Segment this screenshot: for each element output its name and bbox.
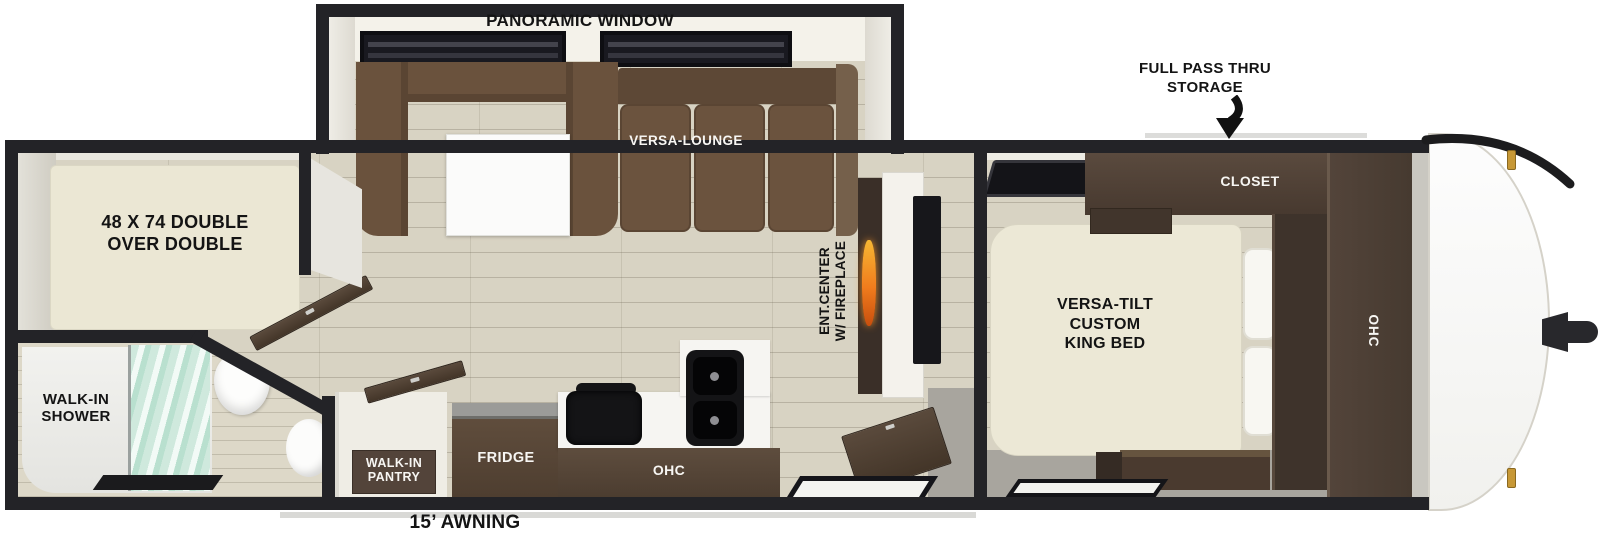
versa-lounge-back bbox=[618, 68, 852, 104]
hitch-arm bbox=[1562, 321, 1598, 343]
ent-center-label: ENT.CENTER W/ FIREPLACE bbox=[817, 191, 859, 391]
bathroom-wall-vertical bbox=[322, 396, 335, 497]
shower-glass-door bbox=[128, 345, 210, 491]
front-inner-wall bbox=[1412, 153, 1428, 497]
storage-arrow-icon bbox=[1200, 95, 1252, 141]
fridge-top bbox=[452, 403, 560, 419]
sink-drain-icon bbox=[710, 372, 719, 381]
closet-overhead-box bbox=[1090, 208, 1172, 234]
pantry-label: WALK-IN PANTRY bbox=[352, 456, 436, 484]
bedroom-ohc-label: OHC bbox=[1359, 301, 1381, 361]
slideout-side-wall-left bbox=[329, 17, 355, 153]
cooktop bbox=[566, 391, 642, 445]
slideout-wall-right bbox=[891, 4, 904, 154]
marker-light-icon bbox=[1507, 150, 1516, 170]
kitchen-sink bbox=[686, 350, 744, 446]
main-wall-bottom bbox=[5, 497, 1429, 510]
shower-threshold bbox=[93, 475, 224, 490]
window-slat bbox=[608, 42, 784, 47]
pass-thru-storage-label: FULL PASS THRU STORAGE bbox=[1100, 60, 1310, 98]
awning-label: 15’ AWNING bbox=[370, 512, 560, 534]
bedroom-floor-vent bbox=[1006, 479, 1169, 497]
fireplace-flame-icon bbox=[862, 240, 876, 326]
bunk-label: 48 X 74 DOUBLE OVER DOUBLE bbox=[58, 212, 292, 255]
fridge-label: FRIDGE bbox=[452, 450, 560, 466]
floorplan-canvas: PANORAMIC WINDOW VERSA-LOUNGE ENT.CENTER… bbox=[0, 0, 1600, 540]
versa-lounge-cushion bbox=[694, 104, 765, 232]
door-handle-icon bbox=[885, 424, 895, 431]
vent-inner bbox=[1013, 483, 1160, 493]
sink-drain-icon bbox=[710, 416, 719, 425]
slideout-side-wall-right bbox=[865, 17, 891, 153]
marker-light-icon bbox=[1507, 468, 1516, 488]
versa-lounge-cushion bbox=[620, 104, 691, 232]
main-wall-left bbox=[5, 140, 18, 510]
shower-label: WALK-IN SHOWER bbox=[24, 391, 128, 426]
window-slat bbox=[608, 53, 784, 58]
tv-panel bbox=[913, 196, 941, 364]
bathroom-wall-horizontal bbox=[12, 330, 208, 343]
slideout-wall-left bbox=[316, 4, 329, 154]
window-slat bbox=[368, 53, 558, 58]
door-handle-icon bbox=[410, 377, 420, 383]
closet-label: CLOSET bbox=[1165, 174, 1335, 190]
storage-indicator-line bbox=[1145, 133, 1367, 138]
panoramic-window-pane-right bbox=[600, 31, 792, 67]
entry-steps-tread bbox=[793, 481, 929, 497]
bedroom-divider-wall bbox=[974, 150, 987, 497]
bedroom-wardrobe-column bbox=[1272, 214, 1327, 490]
bunk-wall-highlight bbox=[18, 153, 299, 160]
king-bed-label: VERSA-TILT CUSTOM KING BED bbox=[1002, 295, 1208, 354]
kitchen-ohc-label: OHC bbox=[558, 463, 780, 479]
bunkroom-wall-right bbox=[299, 150, 311, 275]
versa-lounge-label: VERSA-LOUNGE bbox=[596, 133, 776, 148]
panoramic-window-label: PANORAMIC WINDOW bbox=[430, 11, 730, 31]
window-slat bbox=[368, 42, 558, 47]
door-handle-icon bbox=[305, 308, 315, 316]
